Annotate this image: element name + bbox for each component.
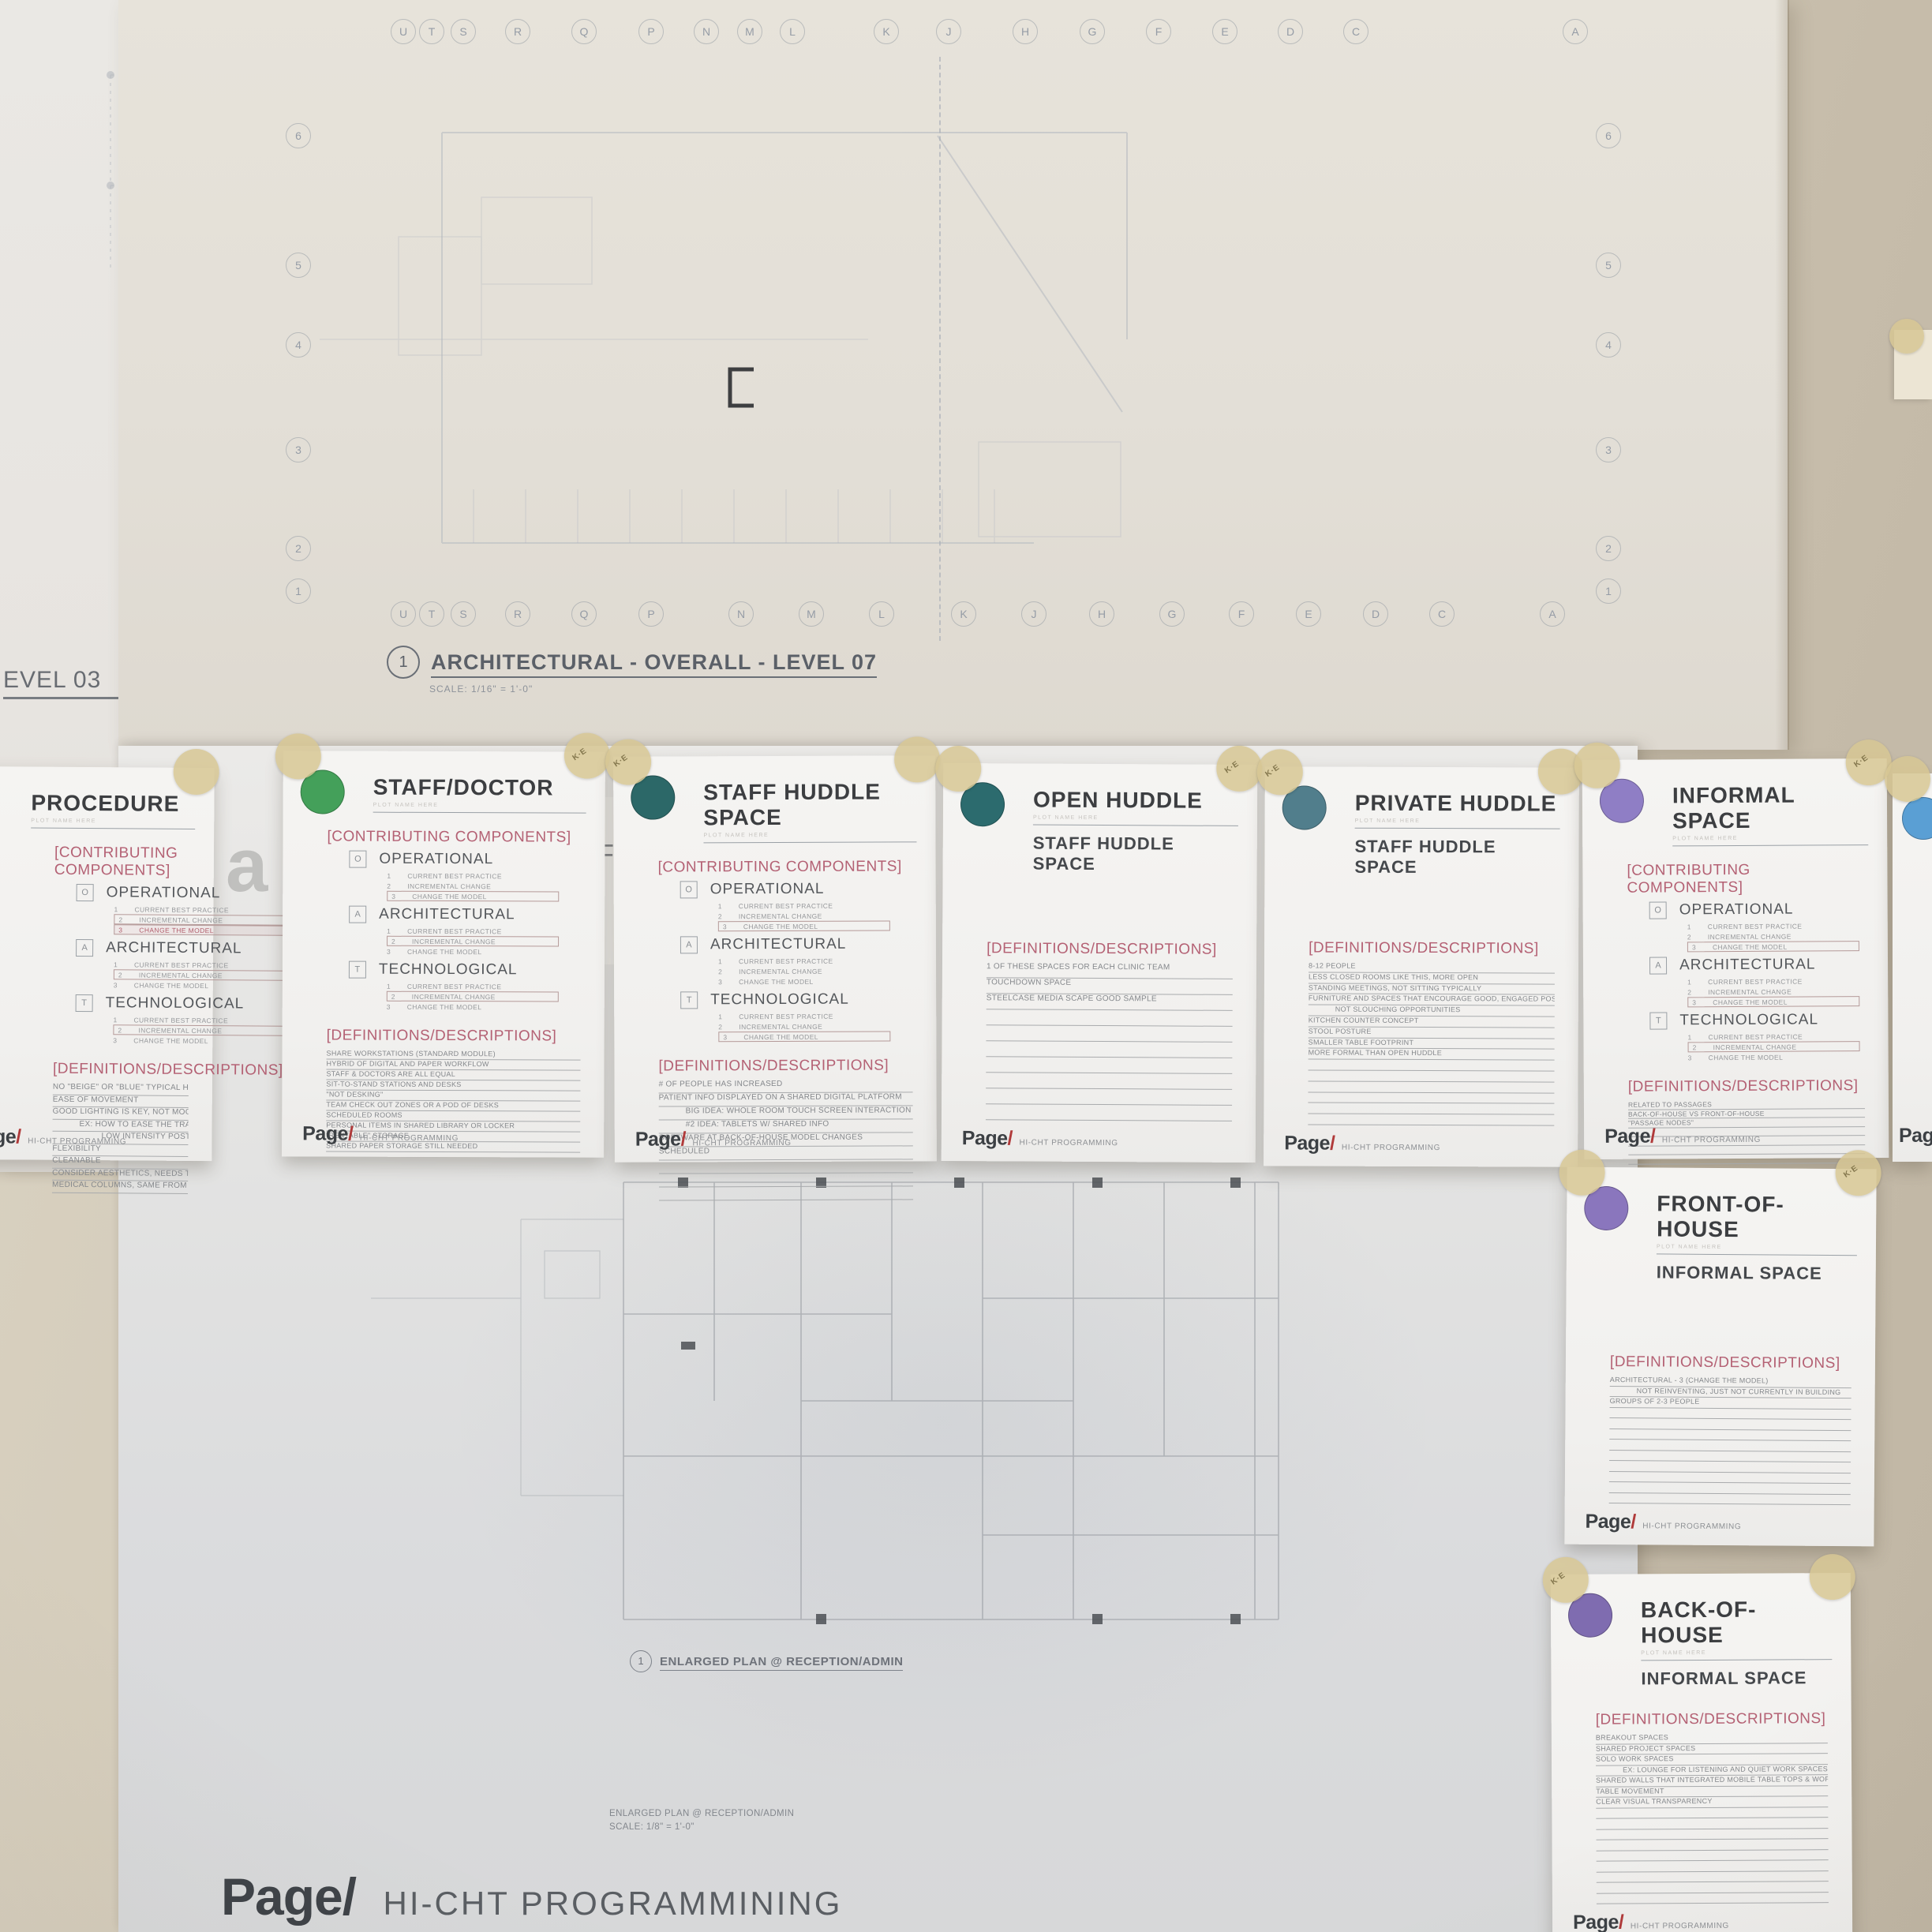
item-label: CHANGE THE MODEL (133, 1036, 208, 1045)
definitions-section: [DEFINITIONS/DESCRIPTIONS]1 OF THESE SPA… (962, 929, 1233, 1121)
card-front: FRONT-OF-HOUSEPLOT NAME HEREINFORMAL SPA… (1564, 1167, 1876, 1547)
component-group-header: OOPERATIONAL (680, 880, 917, 898)
item-label: CURRENT BEST PRACTICE (134, 960, 229, 969)
page-logo: Page (1604, 1125, 1650, 1148)
card-footer: Page/HI-CHT PROGRAMMING (1585, 1511, 1741, 1534)
drawing-scale: SCALE: 1/16" = 1'-0" (429, 683, 877, 695)
component-item: 1CURRENT BEST PRACTICE (387, 981, 559, 992)
card-header: PROCEDUREPLOT NAME HERE (31, 791, 195, 829)
card-title: BACK-OF-HOUSE (1641, 1597, 1832, 1648)
component-group-architectural: AARCHITECTURAL1CURRENT BEST PRACTICE2INC… (1649, 956, 1869, 1007)
component-letter-icon: O (77, 884, 94, 901)
item-label: CURRENT BEST PRACTICE (407, 871, 502, 879)
contributing-components-section: [CONTRIBUTING COMPONENTS]OOPERATIONAL1CU… (1603, 845, 1869, 1068)
card-header: FRONT-OF-HOUSEPLOT NAME HERE (1657, 1191, 1858, 1256)
page-logo: Pag (1899, 1125, 1932, 1147)
item-label: INCREMENTAL CHANGE (739, 967, 822, 975)
grid-column-letter: H (1013, 19, 1038, 44)
grid-row-number: 1 (286, 578, 311, 604)
grid-column-letter: Q (571, 19, 597, 44)
component-group-operational: OOPERATIONAL1CURRENT BEST PRACTICE2INCRE… (76, 884, 194, 935)
component-item: 2INCREMENTAL CHANGE (387, 881, 559, 892)
card-header: OPEN HUDDLEPLOT NAME HERE (1033, 788, 1238, 826)
grid-column-letter: N (694, 19, 719, 44)
component-name: ARCHITECTURAL (710, 936, 846, 954)
definition-line: STAFF & DOCTORS ARE ALL EQUAL (326, 1069, 580, 1080)
category-dot-icon (1902, 797, 1932, 840)
card-header: BACK-OF-HOUSEPLOT NAME HERE (1641, 1597, 1832, 1661)
component-group-technological: TTECHNOLOGICAL1CURRENT BEST PRACTICE2INC… (349, 961, 586, 1013)
masking-tape (1810, 1554, 1855, 1600)
component-group-technological: TTECHNOLOGICAL1CURRENT BEST PRACTICE2INC… (75, 994, 193, 1046)
component-item: 1CURRENT BEST PRACTICE (387, 871, 559, 882)
item-label: CHANGE THE MODEL (139, 926, 214, 934)
component-item: 3CHANGE THE MODEL (114, 979, 286, 991)
component-group-architectural: AARCHITECTURAL1CURRENT BEST PRACTICE2INC… (680, 935, 917, 987)
tape-brand-print: K∙E (1223, 759, 1241, 775)
grid-column-letter: L (780, 19, 805, 44)
item-label: INCREMENTAL CHANGE (138, 1026, 222, 1035)
item-label: INCREMENTAL CHANGE (1708, 932, 1792, 941)
component-letter-icon: O (349, 851, 366, 868)
component-item: 1CURRENT BEST PRACTICE (1687, 1031, 1859, 1042)
component-group-architectural: AARCHITECTURAL1CURRENT BEST PRACTICE2INC… (76, 939, 194, 990)
page-logo: Page (1573, 1911, 1619, 1932)
card-header: INFORMAL SPACEPLOT NAME HERE (1672, 782, 1868, 846)
card-title: PRIVATE HUDDLE (1355, 791, 1560, 817)
component-group-operational: OOPERATIONAL1CURRENT BEST PRACTICE2INCRE… (1649, 900, 1869, 952)
grid-row-number: 2 (286, 536, 311, 561)
match-line (939, 57, 941, 641)
item-label: CHANGE THE MODEL (739, 977, 814, 985)
component-name: ARCHITECTURAL (106, 939, 242, 957)
item-label: CHANGE THE MODEL (743, 922, 818, 930)
grid-column-letter: N (728, 601, 754, 627)
drawing-title: 1ARCHITECTURAL - OVERALL - LEVEL 07 SCAL… (387, 646, 877, 695)
definition-line-blank (659, 1159, 913, 1174)
item-label: CURRENT BEST PRACTICE (407, 927, 502, 934)
masking-tape: K∙E (1257, 749, 1303, 795)
components-heading: [CONTRIBUTING COMPONENTS] (327, 828, 586, 846)
definition-line: SHARE WORKSTATIONS (STANDARD MODULE) (327, 1049, 581, 1060)
grid-column-letter: G (1080, 19, 1105, 44)
component-group-technological: TTECHNOLOGICAL1CURRENT BEST PRACTICE2INC… (680, 990, 917, 1042)
page-logo-slash: / (1631, 1511, 1636, 1533)
card-footer: Page/HI-CHT PROGRAMMING (1284, 1132, 1440, 1155)
definition-line-blank (986, 1041, 1232, 1058)
card-subtitle: STAFF HUDDLE SPACE (1033, 833, 1238, 875)
grid-column-letter: D (1278, 19, 1303, 44)
masking-tape (894, 736, 940, 782)
grid-row-number: 6 (1596, 123, 1621, 148)
title-note: PLOT NAME HERE (31, 818, 195, 825)
item-label: CHANGE THE MODEL (407, 1002, 482, 1010)
definition-line-blank (659, 1186, 913, 1200)
photo-planning-wall: EVEL 03 UTSRQPNMLKJHGFEDCAUTSRQPNMLKJHGF… (0, 0, 1932, 1932)
page-logo-slash: / (1008, 1127, 1013, 1149)
definition-line-blank (1308, 1071, 1554, 1083)
grid-column-letter: P (638, 19, 664, 44)
component-letter-icon: T (76, 994, 93, 1012)
item-number: 3 (387, 947, 396, 955)
item-label: CURRENT BEST PRACTICE (739, 957, 833, 964)
item-number: 2 (118, 1026, 127, 1034)
item-label: INCREMENTAL CHANGE (739, 1022, 822, 1030)
page-logo: Page (635, 1128, 681, 1150)
definitions-heading: [DEFINITIONS/DESCRIPTIONS] (1610, 1354, 1851, 1372)
definition-line-blank (986, 1088, 1232, 1106)
component-letter-icon: A (680, 936, 698, 953)
definitions-heading: [DEFINITIONS/DESCRIPTIONS] (987, 940, 1233, 959)
components-heading: [CONTRIBUTING COMPONENTS] (658, 858, 917, 876)
definition-line: HYBRID OF DIGITAL AND PAPER WORKFLOW (326, 1059, 580, 1070)
item-number: 1 (1687, 978, 1697, 986)
tape-brand-print: K∙E (1549, 1571, 1567, 1586)
definition-line-blank (986, 1057, 1232, 1074)
component-items: 1CURRENT BEST PRACTICE2INCREMENTAL CHANG… (76, 959, 194, 990)
definition-line: GOOD LIGHTING IS KEY, NOT MOOD LIGHTING (53, 1107, 189, 1121)
grid-column-letter: Q (571, 601, 597, 627)
component-name: OPERATIONAL (379, 851, 493, 869)
definition-line-blank (987, 1009, 1233, 1027)
project-tagline: HI-CHT PROGRAMMINING (384, 1885, 843, 1922)
component-item: 3CHANGE THE MODEL (1687, 996, 1859, 1007)
component-items: 1CURRENT BEST PRACTICE2INCREMENTAL CHANG… (349, 926, 586, 957)
item-number: 3 (718, 978, 728, 986)
grid-column-letter: C (1343, 19, 1368, 44)
grid-column-letter: R (505, 19, 530, 44)
item-number: 3 (723, 1033, 732, 1041)
component-name: ARCHITECTURAL (379, 906, 515, 924)
card-title: FRONT-OF-HOUSE (1657, 1191, 1857, 1243)
definition-line-blank (1309, 1060, 1555, 1072)
grid-column-letter: M (799, 601, 824, 627)
component-letter-icon: T (680, 991, 698, 1009)
footer-tagline: HI-CHT PROGRAMMING (360, 1134, 459, 1143)
grid-column-letter: J (936, 19, 961, 44)
definitions-section: [DEFINITIONS/DESCRIPTIONS]BREAKOUT SPACE… (1572, 1699, 1829, 1904)
card-subtitle: INFORMAL SPACE (1657, 1262, 1857, 1284)
item-number: 3 (1688, 1054, 1698, 1061)
page-logo-slash: / (681, 1128, 687, 1150)
page-logo: Page (302, 1122, 348, 1144)
definition-line: TOUCHDOWN SPACE (987, 978, 1233, 995)
component-name: OPERATIONAL (107, 884, 221, 902)
footer-tagline: HI-CHT PROGRAMMING (1631, 1922, 1729, 1931)
definition-line: "NOT DESKING" (326, 1090, 580, 1101)
component-item: 2INCREMENTAL CHANGE (1687, 986, 1859, 997)
component-name: TECHNOLOGICAL (1679, 1011, 1818, 1029)
item-label: CHANGE THE MODEL (1713, 998, 1788, 1005)
grid-column-letter: R (505, 601, 530, 627)
grid-column-letter: T (419, 601, 444, 627)
title-note: PLOT NAME HERE (703, 832, 916, 838)
definitions-section: [DEFINITIONS/DESCRIPTIONS]8-12 PEOPLELES… (1284, 928, 1555, 1125)
grid-column-letter: G (1159, 601, 1185, 627)
card-partial-blue: Pag (1893, 773, 1932, 1162)
definition-line: KITCHEN COUNTER CONCEPT (1309, 1017, 1555, 1028)
card-private-huddle: PRIVATE HUDDLEPLOT NAME HERESTAFF HUDDLE… (1264, 766, 1579, 1166)
component-group-header: TTECHNOLOGICAL (1649, 1011, 1869, 1029)
item-label: INCREMENTAL CHANGE (1708, 987, 1792, 996)
item-label: CURRENT BEST PRACTICE (739, 1012, 833, 1020)
item-number: 2 (718, 968, 728, 975)
component-group-header: OOPERATIONAL (1649, 900, 1869, 919)
item-label: INCREMENTAL CHANGE (139, 915, 223, 924)
component-group-operational: OOPERATIONAL1CURRENT BEST PRACTICE2INCRE… (349, 851, 586, 902)
component-items: 1CURRENT BEST PRACTICE2INCREMENTAL CHANG… (680, 900, 917, 931)
definition-line: EASE OF MOVEMENT (53, 1095, 189, 1108)
masking-tape: K∙E (1835, 1150, 1881, 1196)
masking-tape: K∙E (605, 739, 651, 785)
definition-line: NO "BEIGE" OR "BLUE" TYPICAL HEALTHCARE … (53, 1083, 189, 1096)
masking-tape (1885, 756, 1930, 802)
card-staff-huddle: STAFF HUDDLE SPACEPLOT NAME HERE[CONTRIB… (613, 755, 937, 1162)
grid-column-letter: S (451, 19, 476, 44)
grid-row-number: 3 (286, 437, 311, 462)
component-item: 3CHANGE THE MODEL (718, 975, 890, 987)
card-footer: Pag (1899, 1125, 1932, 1148)
item-number: 1 (387, 927, 396, 934)
definitions-heading: [DEFINITIONS/DESCRIPTIONS] (1628, 1077, 1865, 1096)
item-number: 2 (718, 1023, 728, 1031)
components-heading: [CONTRIBUTING COMPONENTS] (1627, 861, 1868, 897)
component-items: 1CURRENT BEST PRACTICE2INCREMENTAL CHANG… (349, 981, 586, 1013)
definition-line: SIT-TO-STAND STATIONS AND DESKS (326, 1080, 580, 1091)
contributing-components-section: [CONTRIBUTING COMPONENTS]OOPERATIONAL1CU… (303, 812, 586, 1017)
title-note: PLOT NAME HERE (373, 803, 586, 809)
item-label: INCREMENTAL CHANGE (1713, 1043, 1797, 1051)
definition-line: FURNITURE AND SPACES THAT ENCOURAGE GOOD… (1309, 994, 1555, 1006)
item-number: 1 (718, 957, 728, 965)
component-items: 1CURRENT BEST PRACTICE2INCREMENTAL CHANG… (680, 955, 917, 987)
definition-line: # OF PEOPLE HAS INCREASED (659, 1079, 913, 1093)
component-item: 3CHANGE THE MODEL (718, 920, 890, 931)
item-label: CURRENT BEST PRACTICE (407, 982, 502, 990)
page-logo: Page (1284, 1132, 1330, 1154)
component-item: 3CHANGE THE MODEL (387, 1002, 559, 1013)
component-item: 1CURRENT BEST PRACTICE (1687, 975, 1859, 987)
card-header: PRIVATE HUDDLEPLOT NAME HERE (1355, 791, 1560, 829)
masking-tape (1559, 1150, 1604, 1196)
tape-brand-print: K∙E (571, 747, 589, 762)
item-label: CURRENT BEST PRACTICE (134, 905, 229, 914)
tape-brand-print: K∙E (612, 753, 630, 769)
definition-line: NOT SLOUCHING OPPORTUNITIES (1309, 1005, 1555, 1017)
grid-column-letter: H (1089, 601, 1114, 627)
detail-number-icon: 1 (630, 1650, 652, 1672)
definitions-heading: [DEFINITIONS/DESCRIPTIONS] (1596, 1710, 1828, 1729)
grid-column-letter: E (1212, 19, 1237, 44)
grid-row-number: 4 (1596, 332, 1621, 358)
definition-line-blank (986, 1104, 1232, 1121)
page-logo: Page (962, 1127, 1008, 1149)
definition-line-blank (986, 1025, 1232, 1043)
component-group-header: AARCHITECTURAL (76, 939, 194, 957)
definition-line: LESS CLOSED ROOMS LIKE THIS, MORE OPEN (1309, 972, 1555, 984)
grid-row-number: 2 (1596, 536, 1621, 561)
grid-column-letter: T (419, 19, 444, 44)
component-name: TECHNOLOGICAL (710, 991, 849, 1009)
item-number: 1 (114, 960, 123, 968)
tape-brand-print: K∙E (1264, 763, 1281, 779)
item-number: 3 (1692, 998, 1702, 1006)
tape-brand-print: K∙E (1852, 753, 1870, 769)
grid-row-number: 1 (1596, 578, 1621, 604)
page-logo-slash: / (1330, 1133, 1335, 1155)
definition-line: MORE FORMAL THAN OPEN HUDDLE (1309, 1049, 1555, 1061)
component-group-header: AARCHITECTURAL (349, 906, 586, 924)
definition-line-blank (1308, 1092, 1554, 1104)
definition-line: 1 OF THESE SPACES FOR EACH CLINIC TEAM (987, 962, 1233, 979)
item-number: 2 (391, 937, 401, 945)
item-number: 1 (387, 982, 396, 990)
footer-tagline: HI-CHT PROGRAMMING (693, 1139, 792, 1148)
grid-column-letter: K (874, 19, 899, 44)
item-number: 1 (113, 1016, 122, 1024)
grid-row-number: 6 (286, 123, 311, 148)
item-label: INCREMENTAL CHANGE (412, 937, 496, 945)
item-number: 3 (391, 892, 401, 900)
grid-column-letter: E (1296, 601, 1321, 627)
definitions-heading: [DEFINITIONS/DESCRIPTIONS] (53, 1061, 189, 1079)
definition-line-blank (1609, 1493, 1851, 1506)
component-group-header: AARCHITECTURAL (1649, 956, 1869, 974)
page-logo-slash: / (1650, 1125, 1656, 1148)
definition-line: STOOL POSTURE (1309, 1027, 1555, 1039)
plan-highlight-mark (730, 369, 754, 406)
definition-line: SMALLER TABLE FOOTPRINT (1309, 1038, 1555, 1050)
page-brand-footer: Page/ HI-CHT PROGRAMMINING (221, 1866, 842, 1926)
contributing-components-section: [CONTRIBUTING COMPONENTS]OOPERATIONAL1CU… (634, 842, 917, 1046)
definitions-section: [DEFINITIONS/DESCRIPTIONS]ARCHITECTURAL … (1586, 1342, 1851, 1505)
item-number: 1 (1687, 923, 1697, 930)
item-label: INCREMENTAL CHANGE (412, 992, 496, 1000)
definitions-heading: [DEFINITIONS/DESCRIPTIONS] (327, 1027, 581, 1045)
component-item: 2INCREMENTAL CHANGE (1687, 930, 1859, 942)
page-logo: Page (0, 1125, 16, 1148)
item-label: CHANGE THE MODEL (743, 1032, 818, 1040)
card-footer: Page/HI-CHT PROGRAMMING (302, 1122, 459, 1146)
definition-line: MEDICAL COLUMNS, SAME FROM ASC (52, 1181, 188, 1194)
card-title: INFORMAL SPACE (1672, 782, 1868, 833)
card-title: STAFF/DOCTOR (373, 775, 586, 801)
item-number: 2 (387, 882, 396, 889)
item-number: 2 (1687, 988, 1697, 996)
component-group-header: TTECHNOLOGICAL (680, 990, 917, 1009)
definition-line: STEELCASE MEDIA SCAPE GOOD SAMPLE (987, 994, 1233, 1011)
component-item: 3CHANGE THE MODEL (387, 946, 559, 957)
item-number: 2 (391, 992, 401, 1000)
footer-tagline: HI-CHT PROGRAMMING (1642, 1522, 1741, 1531)
item-number: 3 (113, 1036, 122, 1044)
grid-column-letter: U (391, 19, 416, 44)
components-heading: [CONTRIBUTING COMPONENTS] (54, 844, 195, 880)
footer-tagline: HI-CHT PROGRAMMING (28, 1137, 126, 1147)
definition-line-blank (1308, 1114, 1554, 1126)
component-items: 1CURRENT BEST PRACTICE2INCREMENTAL CHANG… (75, 1014, 193, 1046)
component-items: 1CURRENT BEST PRACTICE2INCREMENTAL CHANG… (349, 871, 586, 902)
overall-plan-sheet: UTSRQPNMLKJHGFEDCAUTSRQPNMLKJHGFEDCA6655… (118, 0, 1788, 750)
component-item: 1CURRENT BEST PRACTICE (718, 955, 890, 966)
contributing-components-section: [CONTRIBUTING COMPONENTS]OOPERATIONAL1CU… (29, 829, 195, 1050)
component-group-operational: OOPERATIONAL1CURRENT BEST PRACTICE2INCRE… (680, 880, 917, 931)
definition-line: 8-12 PEOPLE (1309, 962, 1555, 974)
definition-line: TEAM CHECK OUT ZONES OR A POD OF DESKS (326, 1100, 580, 1111)
grid-column-letter: A (1540, 601, 1565, 627)
component-item: 3CHANGE THE MODEL (718, 1031, 890, 1042)
item-number: 1 (1687, 1033, 1697, 1041)
card-footer: Page/HI-CHT PROGRAMMING (635, 1128, 792, 1151)
card-procedure: PROCEDUREPLOT NAME HERE[CONTRIBUTING COM… (0, 766, 215, 1161)
definition-line: BIG IDEA: WHOLE ROOM TOUCH SCREEN INTERA… (659, 1106, 913, 1120)
grid-column-letter: M (737, 19, 762, 44)
component-item: 1CURRENT BEST PRACTICE (387, 926, 559, 937)
paper-scrap (1894, 330, 1932, 399)
component-name: TECHNOLOGICAL (379, 961, 518, 979)
footer-tagline: HI-CHT PROGRAMMING (1019, 1138, 1118, 1148)
definitions-heading: [DEFINITIONS/DESCRIPTIONS] (658, 1057, 912, 1075)
card-title: STAFF HUDDLE SPACE (703, 779, 916, 830)
definition-line-blank (1597, 1893, 1829, 1904)
definition-line: SCHEDULED ROOMS (326, 1110, 580, 1121)
component-name: OPERATIONAL (710, 881, 825, 899)
floor-plan-sketch (118, 0, 1788, 750)
level-03-label: EVEL 03 (3, 667, 133, 699)
grid-column-letter: P (638, 601, 664, 627)
card-footer: Page/HI-CHT PROGRAMMING (0, 1125, 126, 1149)
card-open-huddle: OPEN HUDDLEPLOT NAME HERESTAFF HUDDLE SP… (942, 763, 1258, 1163)
card-back: BACK-OF-HOUSEPLOT NAME HEREINFORMAL SPAC… (1551, 1573, 1852, 1932)
item-label: CURRENT BEST PRACTICE (1708, 1032, 1803, 1041)
component-items: 1CURRENT BEST PRACTICE2INCREMENTAL CHANG… (1649, 920, 1869, 952)
masking-tape (1574, 743, 1620, 788)
item-label: INCREMENTAL CHANGE (739, 912, 822, 919)
card-header: STAFF/DOCTORPLOT NAME HERE (373, 775, 586, 814)
masking-tape: K∙E (1543, 1557, 1589, 1603)
definitions-section: [DEFINITIONS/DESCRIPTIONS]NO "BEIGE" OR … (28, 1050, 189, 1194)
component-group-header: TTECHNOLOGICAL (349, 961, 586, 979)
component-item: 3CHANGE THE MODEL (114, 924, 286, 936)
definition-line-blank (986, 1073, 1232, 1090)
item-number: 2 (718, 912, 728, 920)
component-items: 1CURRENT BEST PRACTICE2INCREMENTAL CHANG… (1649, 1031, 1869, 1062)
card-footer: Page/HI-CHT PROGRAMMING (1604, 1125, 1761, 1148)
enlarged-plan-subtitle: ENLARGED PLAN @ RECEPTION/ADMIN SCALE: 1… (609, 1807, 794, 1835)
sheet-edge-shadow (1775, 0, 1789, 750)
page-logo-slash: / (16, 1125, 21, 1148)
component-items: 1CURRENT BEST PRACTICE2INCREMENTAL CHANG… (1649, 975, 1869, 1007)
component-name: TECHNOLOGICAL (106, 994, 245, 1013)
definition-line: CONSIDER AESTHETICS, NEEDS TO LOOK "GREA… (52, 1168, 188, 1181)
item-number: 2 (118, 971, 128, 979)
title-note: PLOT NAME HERE (1033, 815, 1238, 822)
masking-tape (173, 749, 219, 795)
item-label: CHANGE THE MODEL (1709, 1053, 1784, 1061)
page-logo: Page/ (221, 1867, 356, 1926)
item-number: 3 (114, 981, 123, 989)
item-label: CURRENT BEST PRACTICE (1708, 922, 1803, 930)
component-item: 2INCREMENTAL CHANGE (1688, 1041, 1860, 1052)
title-note: PLOT NAME HERE (1355, 818, 1560, 825)
item-number: 3 (723, 923, 732, 930)
component-item: 3CHANGE THE MODEL (1688, 1051, 1860, 1062)
title-note: PLOT NAME HERE (1672, 835, 1868, 841)
grid-row-number: 4 (286, 332, 311, 358)
masking-tape (275, 733, 321, 779)
grid-column-letter: F (1146, 19, 1171, 44)
drawing-title-text: ARCHITECTURAL - OVERALL - LEVEL 07 (431, 650, 877, 678)
